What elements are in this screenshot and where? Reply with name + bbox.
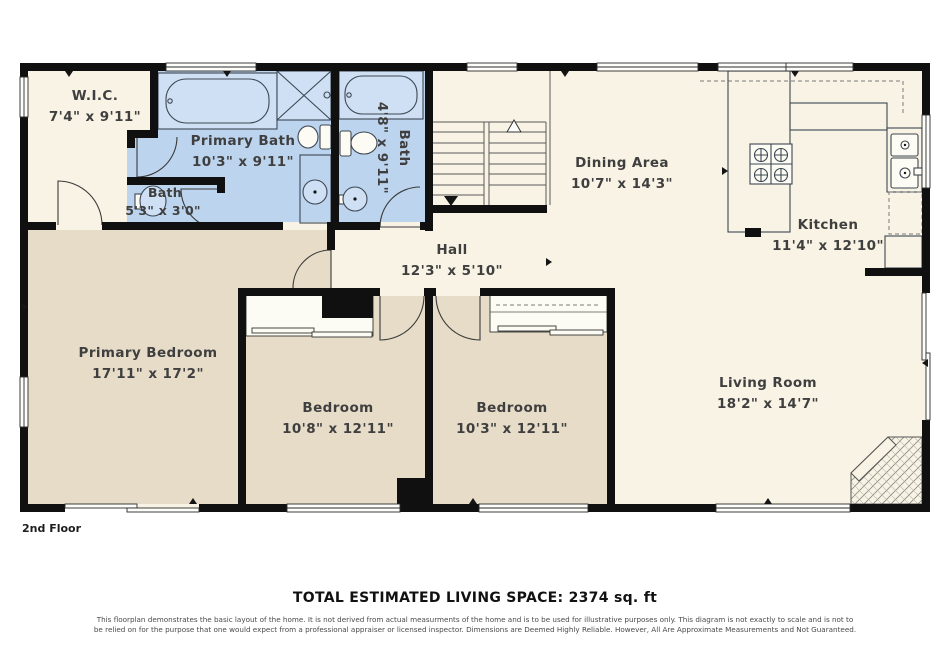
floor-level-label: 2nd Floor (22, 522, 82, 535)
window (166, 63, 256, 71)
room-name-label: Bedroom (302, 400, 373, 416)
window (716, 504, 850, 512)
room-name-label: Hall (436, 242, 467, 258)
room-dims-label: 17'11" x 17'2" (92, 366, 204, 382)
kitchen-sink-icon (891, 134, 923, 188)
room-name-label: W.I.C. (72, 88, 119, 104)
window (479, 504, 588, 512)
window (20, 377, 28, 427)
floor-fills (24, 67, 926, 508)
room-name-label: Dining Area (575, 155, 669, 171)
window (287, 504, 400, 512)
room-dims-label: 10'3" x 9'11" (192, 154, 294, 170)
floorplan-canvas: W.I.C. 7'4" x 9'11" Primary Bath 10'3" x… (0, 0, 950, 650)
toilet-icon (298, 125, 331, 149)
closet-bedroom-right (490, 292, 607, 335)
sliding-door (312, 332, 372, 337)
room-dims-label: 12'3" x 5'10" (401, 263, 503, 279)
room-dims-label: 7'4" x 9'11" (49, 109, 141, 125)
window (718, 63, 853, 71)
room-dims-label: 4'8" x 9'11" (374, 102, 390, 194)
stove-icon (750, 144, 792, 184)
window (467, 63, 517, 71)
room-name-label: Bath (396, 129, 412, 166)
window (597, 63, 698, 71)
room-name-label: Bath (148, 185, 182, 200)
disclaimer-line-2: be relied on for the purpose that one wo… (94, 625, 856, 634)
room-name-label: Kitchen (798, 217, 859, 233)
room-dims-label: 18'2" x 14'7" (717, 396, 819, 412)
room-name-label: Bedroom (476, 400, 547, 416)
window (922, 115, 930, 188)
room-name-label: Primary Bedroom (79, 345, 218, 361)
toilet-icon (340, 131, 377, 156)
room-dims-label: 10'7" x 14'3" (571, 176, 673, 192)
counter-end-cap (745, 228, 761, 237)
room-dims-label: 11'4" x 12'10" (772, 238, 884, 254)
room-dims-label: 10'3" x 12'11" (456, 421, 568, 437)
sliding-door (252, 328, 314, 333)
window (20, 77, 28, 117)
shower-icon (277, 71, 331, 120)
room-dims-label: 10'8" x 12'11" (282, 421, 394, 437)
room-name-label: Living Room (719, 375, 817, 391)
total-living-space-label: TOTAL ESTIMATED LIVING SPACE: 2374 sq. f… (293, 590, 657, 606)
room-name-label: Primary Bath (191, 133, 296, 149)
room-dims-label: 5'3" x 3'0" (125, 203, 201, 218)
floorplan-page: W.I.C. 7'4" x 9'11" Primary Bath 10'3" x… (0, 0, 950, 650)
bathtub-icon (158, 73, 277, 129)
disclaimer-line-1: This floorplan demonstrates the basic la… (96, 615, 854, 624)
closet-bedroom-left (246, 292, 373, 337)
sliding-door (550, 330, 603, 335)
sliding-door (498, 326, 556, 331)
